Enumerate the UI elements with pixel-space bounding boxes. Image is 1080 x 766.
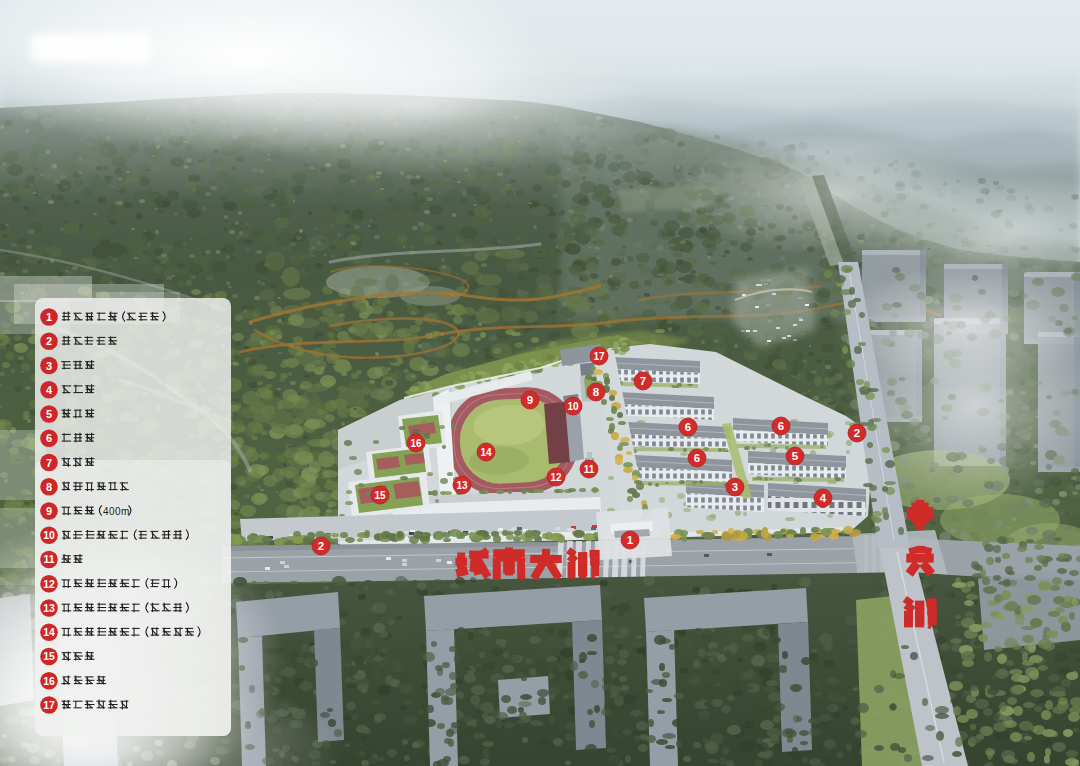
svg-text:10: 10 [43,529,55,541]
svg-text:6: 6 [778,420,784,432]
svg-text:17: 17 [593,351,605,362]
svg-text:16: 16 [410,438,422,449]
svg-text:15: 15 [374,490,386,501]
svg-text:13: 13 [43,602,55,614]
svg-text:2: 2 [854,427,860,439]
svg-text:4: 4 [46,384,53,396]
svg-text:6: 6 [46,432,52,444]
svg-text:5: 5 [46,408,52,420]
svg-text:3: 3 [46,360,52,372]
svg-text:12: 12 [43,578,55,590]
svg-text:2: 2 [318,540,324,552]
svg-text:9: 9 [527,394,533,406]
svg-text:14: 14 [480,447,492,458]
svg-text:7: 7 [46,457,52,469]
svg-text:11: 11 [584,464,595,475]
svg-text:4: 4 [820,492,827,504]
svg-text:16: 16 [43,675,55,687]
svg-text:2: 2 [46,335,52,347]
svg-text:15: 15 [43,650,55,662]
svg-text:7: 7 [640,375,646,387]
svg-text:m: m [121,506,129,517]
svg-text:1: 1 [627,534,634,546]
svg-text:17: 17 [43,699,55,711]
svg-text:8: 8 [593,386,600,398]
svg-text:12: 12 [550,472,562,483]
svg-text:13: 13 [456,480,468,491]
svg-text:9: 9 [46,505,52,517]
svg-text:5: 5 [792,450,799,462]
svg-text:14: 14 [43,626,55,638]
svg-text:3: 3 [732,481,738,493]
svg-text:6: 6 [685,421,691,433]
svg-text:11: 11 [43,553,54,565]
svg-text:8: 8 [46,481,52,493]
svg-text:1: 1 [46,311,52,323]
svg-text:10: 10 [567,401,579,412]
svg-text:6: 6 [694,452,700,464]
